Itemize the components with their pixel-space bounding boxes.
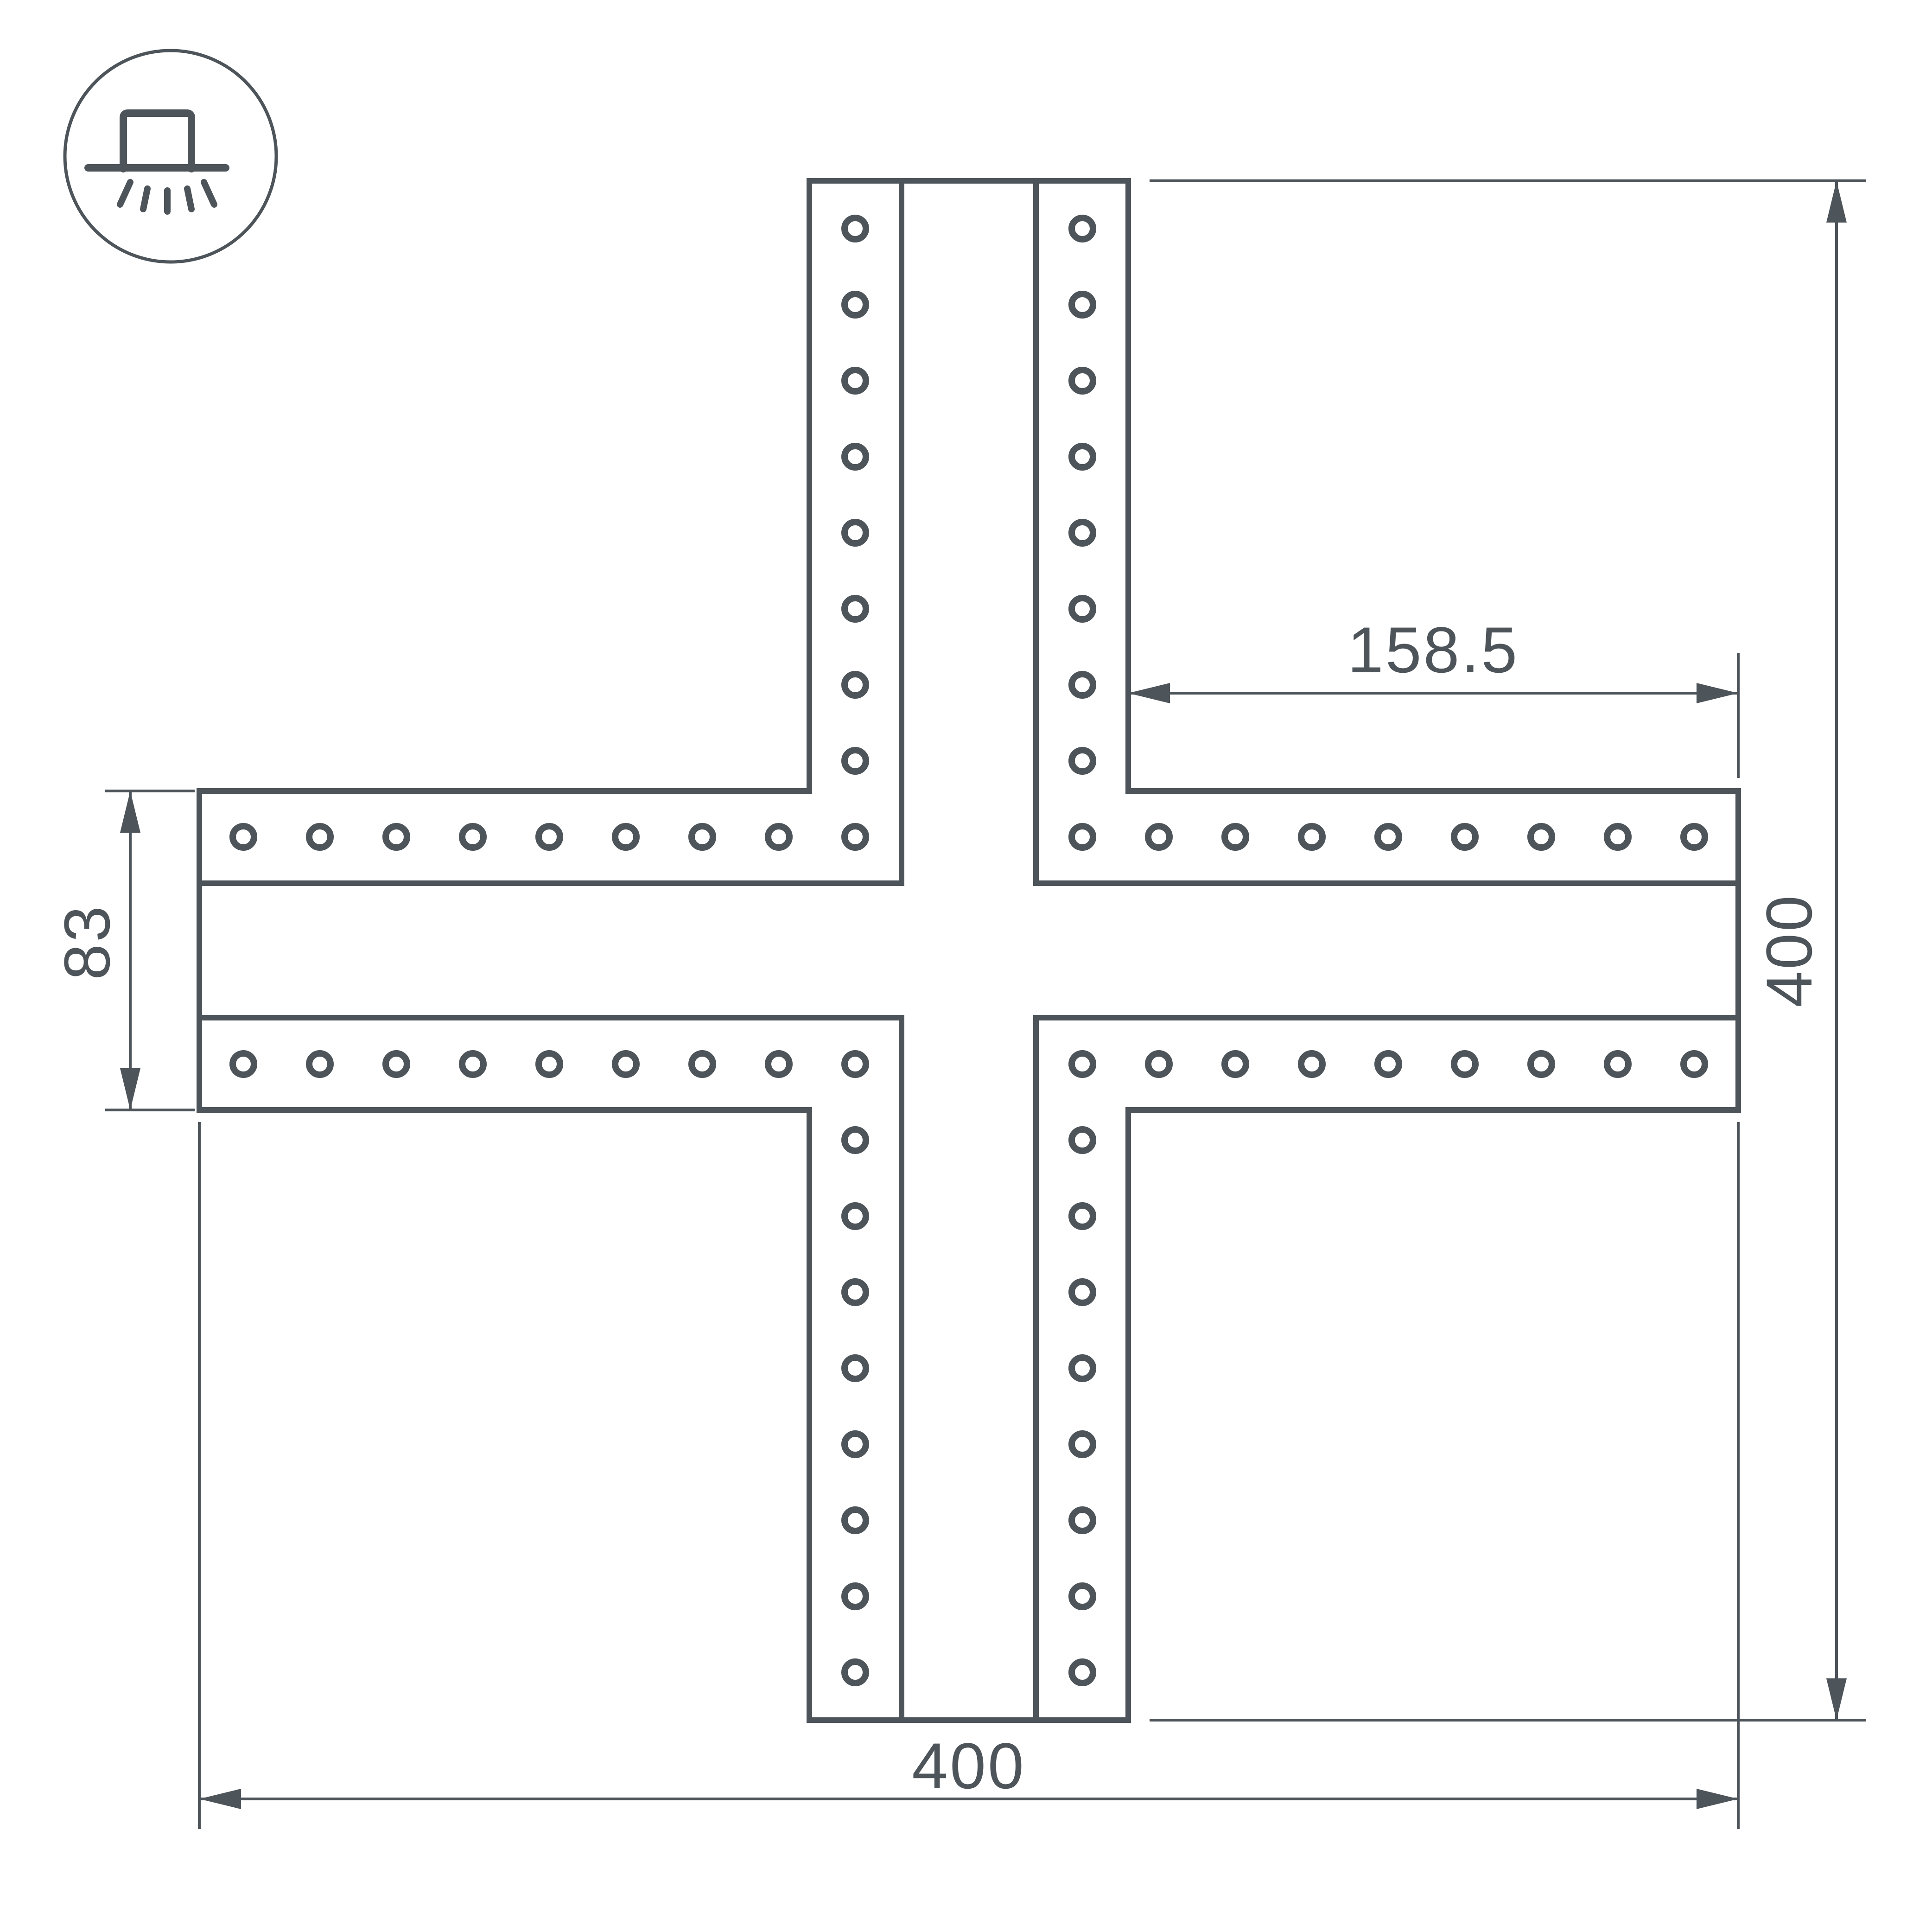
led-hole [768, 1053, 789, 1075]
led-hole [1072, 750, 1093, 772]
led-hole [1072, 1129, 1093, 1151]
led-hole [692, 1053, 713, 1075]
dimension-value: 400 [912, 1729, 1026, 1802]
led-hole [1378, 826, 1399, 848]
led-hole [845, 750, 866, 772]
led-hole [1454, 826, 1475, 848]
led-hole [1684, 826, 1705, 848]
led-hole [1684, 1053, 1705, 1075]
led-hole [1148, 826, 1169, 848]
dimension-overall-height: 400 [1150, 181, 1866, 1720]
led-hole [1072, 218, 1093, 239]
dimension-value: 400 [1753, 893, 1825, 1007]
inner-channel-line-bottom-right [1036, 1018, 1738, 1720]
led-hole [1225, 826, 1246, 848]
led-hole [1072, 1205, 1093, 1227]
arrow-head [1826, 181, 1847, 223]
led-hole [692, 826, 713, 848]
arrow-head [120, 1068, 140, 1110]
led-hole [539, 1053, 560, 1075]
led-hole [1531, 826, 1552, 848]
led-hole [462, 1053, 483, 1075]
inner-channel-line-top-left [199, 181, 902, 883]
led-hole [845, 370, 866, 391]
led-hole [1072, 674, 1093, 695]
led-hole [233, 826, 254, 848]
led-hole [1072, 370, 1093, 391]
led-hole [1225, 1053, 1246, 1075]
led-hole [845, 522, 866, 543]
led-hole [1531, 1053, 1552, 1075]
led-hole [845, 1510, 866, 1531]
led-hole [386, 826, 407, 848]
led-hole [845, 1053, 866, 1075]
led-hole [1301, 1053, 1322, 1075]
led-hole [845, 826, 866, 848]
led-holes [233, 218, 1705, 1683]
led-hole [845, 1205, 866, 1227]
led-hole [768, 826, 789, 848]
arrow-head [199, 1789, 241, 1809]
led-hole [615, 1053, 636, 1075]
led-hole [1072, 826, 1093, 848]
led-hole [539, 826, 560, 848]
led-hole [845, 446, 866, 467]
led-hole [1072, 446, 1093, 467]
ceiling-mount-light-icon [65, 51, 276, 262]
led-hole [845, 1358, 866, 1379]
inner-channel-line-bottom-left [199, 1018, 902, 1720]
icon-light-ray [143, 189, 147, 209]
led-hole [845, 218, 866, 239]
arrow-head [1826, 1678, 1847, 1720]
led-profile-cross-connector-drawing: 158.5 83 400 400 [0, 0, 1932, 1932]
led-hole [845, 1586, 866, 1607]
led-hole [845, 294, 866, 315]
led-hole [1607, 1053, 1628, 1075]
led-hole [1072, 1510, 1093, 1531]
dimension-overall-width: 400 [199, 1122, 1738, 1829]
led-hole [386, 1053, 407, 1075]
icon-light-ray [120, 182, 130, 204]
led-hole [1072, 1662, 1093, 1683]
icon-light-ray [204, 182, 214, 204]
led-hole [845, 1662, 866, 1683]
icon-circle [65, 51, 276, 262]
led-hole [1454, 1053, 1475, 1075]
led-hole [309, 1053, 330, 1075]
arrow-head [1128, 683, 1170, 703]
led-hole [462, 826, 483, 848]
led-hole [1072, 1434, 1093, 1455]
led-hole [1301, 826, 1322, 848]
dimension-value: 158.5 [1347, 613, 1519, 686]
dimension-arm-length: 158.5 [1128, 613, 1738, 778]
arrow-head [120, 791, 140, 833]
led-hole [1072, 1282, 1093, 1303]
led-hole [1072, 1586, 1093, 1607]
icon-fixture-square [123, 113, 191, 169]
led-hole [1072, 294, 1093, 315]
led-hole [845, 1129, 866, 1151]
arrow-head [1697, 1789, 1738, 1809]
profile-outline [199, 181, 1738, 1720]
led-hole [845, 1282, 866, 1303]
led-hole [1072, 522, 1093, 543]
led-hole [845, 1434, 866, 1455]
led-hole [1072, 598, 1093, 619]
led-hole [1072, 1053, 1093, 1075]
led-hole [845, 674, 866, 695]
inner-channel-line-top-right [1036, 181, 1738, 883]
led-hole [233, 1053, 254, 1075]
led-hole [845, 598, 866, 619]
icon-light-ray [187, 189, 191, 209]
led-hole [615, 826, 636, 848]
led-hole [1378, 1053, 1399, 1075]
led-hole [1072, 1358, 1093, 1379]
dimension-value: 83 [51, 904, 123, 980]
led-hole [1148, 1053, 1169, 1075]
led-hole [309, 826, 330, 848]
led-hole [1607, 826, 1628, 848]
dimension-profile-width: 83 [51, 791, 195, 1110]
arrow-head [1697, 683, 1738, 703]
